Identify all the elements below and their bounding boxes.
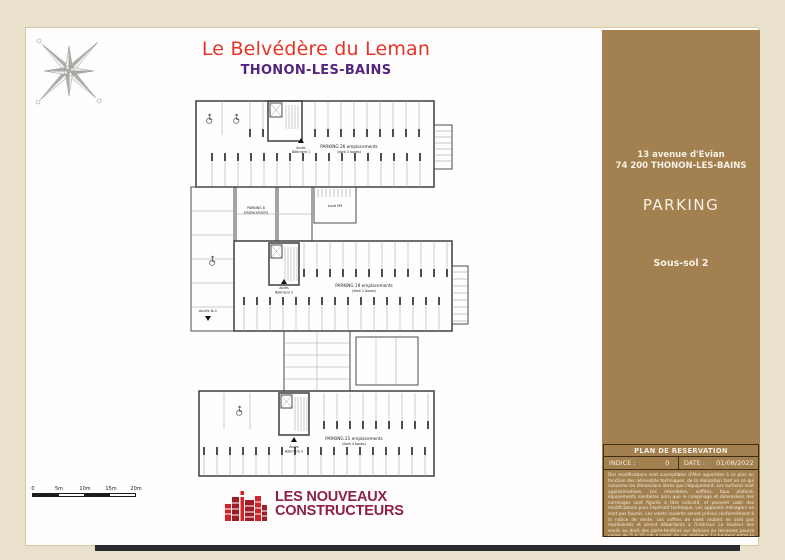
wing-top: PARKING 26 emplacements (dont 2 boxes) A… (196, 101, 452, 187)
parking21-sublabel: (dont 4 boxes) (342, 442, 366, 446)
reservation-box-header: PLAN DE RESERVATION (604, 445, 758, 457)
parking8-label: PARKING 8 (247, 206, 265, 210)
compass-tip-circle-se (97, 99, 101, 103)
wing-middle: PARKING 19 emplacements (dont 2 boxes) A… (234, 241, 468, 331)
scale-bar-segments (32, 493, 136, 497)
access-triangle-3 (291, 437, 297, 442)
date-value: 01/08/2022 (712, 459, 758, 467)
address-line2: 74 200 THONON-LES-BAINS (602, 161, 760, 172)
exterior-stair-top (434, 125, 452, 169)
compass-tip-circle-nw (37, 39, 41, 43)
address-line1: 13 avenue d'Evian (602, 150, 760, 161)
reservation-disclaimer: Des modifications sont susceptibles d'êt… (604, 470, 758, 536)
logo-line2: CONSTRUCTEURS (275, 505, 404, 519)
indice-label: INDICE : (604, 459, 656, 467)
scale-label-20: 20m (130, 486, 141, 492)
lnc-logo-icon (224, 488, 268, 522)
compass-center (67, 69, 71, 73)
scale-label-15: 15m (105, 486, 116, 492)
parking26-sublabel: (dont 2 boxes) (337, 150, 361, 154)
level-label: Sous-sol 2 (602, 258, 760, 269)
exterior-stair-middle (452, 266, 468, 324)
reservation-box: PLAN DE RESERVATION INDICE : 0 DATE : 01… (603, 444, 759, 537)
disabled-parking-icon (210, 256, 216, 266)
plan-type-label: PARKING (602, 196, 760, 214)
compass-tip-circle-sw (36, 100, 40, 104)
floor-plan-drawing: PARKING 26 emplacements (dont 2 boxes) A… (184, 91, 489, 483)
parking21-label: PARKING 21 emplacements (325, 436, 382, 441)
residence-city: THONON-LES-BAINS (126, 63, 506, 78)
disabled-parking-icon (237, 406, 243, 416)
stair-core-2 (269, 243, 299, 285)
left-column: Accès N-1 (191, 187, 234, 331)
scale-label-10: 10m (79, 486, 90, 492)
local-em-label: Local EM (328, 204, 343, 208)
acces-batiment2-line2: Bâtiment 2 (275, 291, 293, 295)
wing-bottom: PARKING 21 emplacements (dont 4 boxes) A… (199, 391, 434, 476)
address-block: 13 avenue d'Evian 74 200 THONON-LES-BAIN… (602, 150, 760, 172)
ramp-triangle-n1 (205, 316, 211, 321)
access-triangle-2 (281, 279, 287, 284)
parking19-label: PARKING 19 emplacements (335, 283, 392, 288)
connector-stalls (284, 331, 418, 391)
stair-core-1 (268, 101, 302, 141)
scale-bar-labels: 0 5m 10m 15m 20m (32, 486, 142, 492)
acces-batiment1-line2: Bâtiment 1 (292, 150, 310, 154)
page-background: Le Belvédère du Leman THONON-LES-BAINS (0, 0, 785, 560)
plan-sheet: Le Belvédère du Leman THONON-LES-BAINS (25, 27, 759, 546)
parking8-sublabel: emplacements (244, 211, 269, 215)
stair-core-3 (279, 393, 309, 435)
disabled-parking-icon (234, 114, 240, 124)
bottom-border-bar (95, 545, 740, 551)
acces-batiment2-line1: Accès (279, 286, 289, 290)
reservation-meta-row: INDICE : 0 DATE : 01/08/2022 (604, 457, 758, 470)
title-block: Le Belvédère du Leman THONON-LES-BAINS (126, 38, 506, 78)
acces-n1-label: Accès N-1 (199, 309, 217, 313)
parking26-label: PARKING 26 emplacements (320, 144, 377, 149)
builder-logo-text: LES NOUVEAUX CONSTRUCTEURS (275, 491, 404, 519)
date-label: DATE : (678, 457, 712, 469)
scale-label-0: 0 (31, 486, 34, 492)
acces-batiment3-line2: Bâtiment 3 (285, 450, 303, 454)
builder-logo: LES NOUVEAUX CONSTRUCTEURS (224, 488, 404, 522)
parking19-sublabel: (dont 2 boxes) (352, 289, 376, 293)
compass-rose-icon (32, 34, 106, 108)
residence-title: Le Belvédère du Leman (126, 38, 506, 60)
mid-rooms: PARKING 8 emplacements Local EM (236, 187, 356, 241)
indice-value: 0 (656, 459, 678, 467)
acces-batiment3-line1: Accès (289, 445, 299, 449)
disabled-parking-icon (207, 114, 213, 124)
storage-rooms (356, 337, 418, 385)
scale-bar: 0 5m 10m 15m 20m (32, 486, 142, 500)
side-panel: 13 avenue d'Evian 74 200 THONON-LES-BAIN… (602, 30, 760, 537)
scale-label-5: 5m (55, 486, 63, 492)
